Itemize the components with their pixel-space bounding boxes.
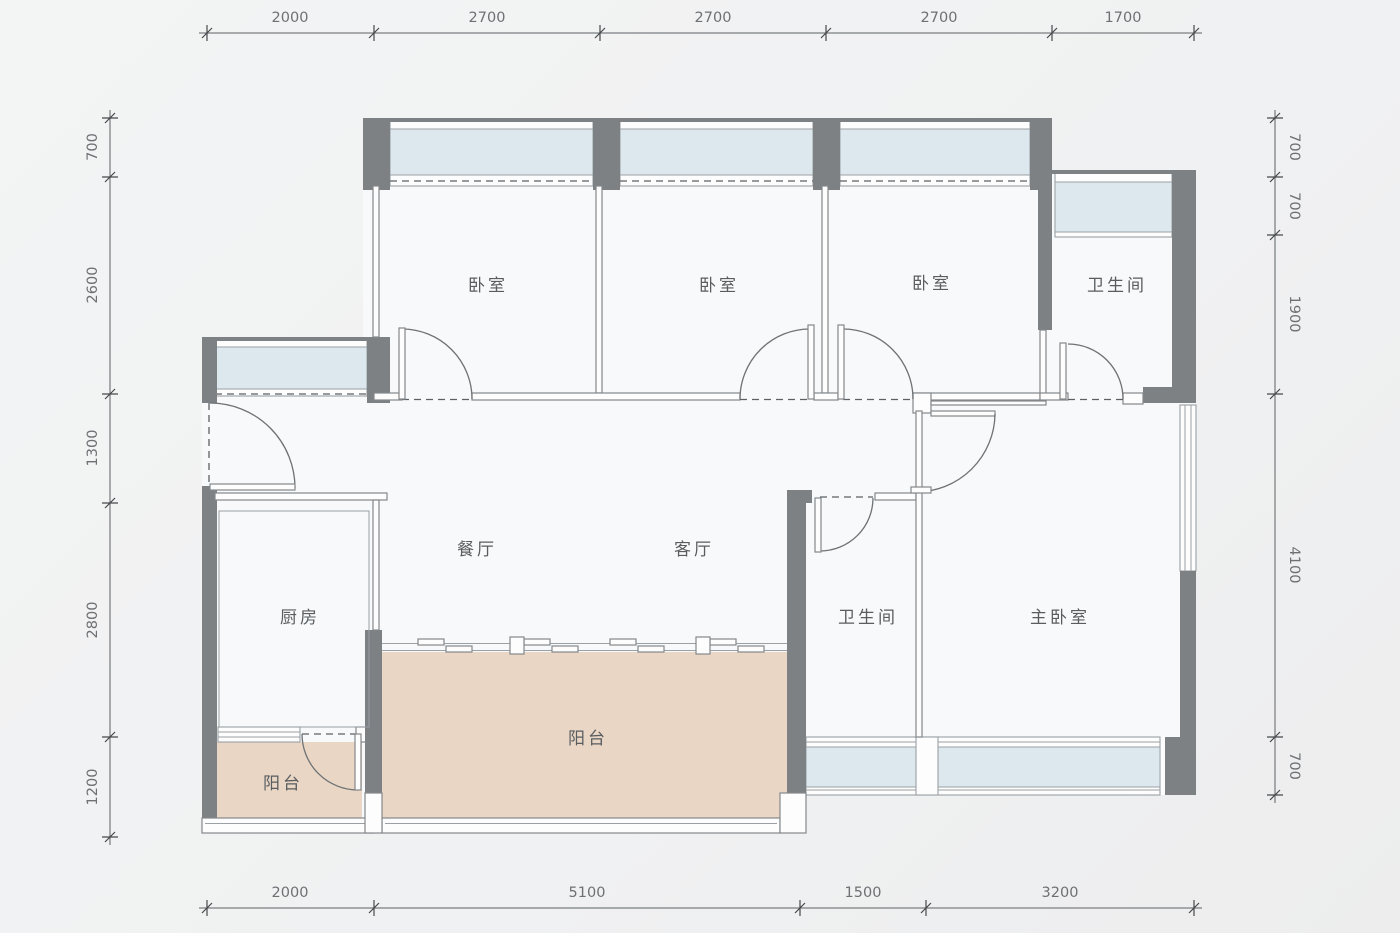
entry-bay-window: [215, 337, 367, 396]
room-label-balcony-small: 阳台: [263, 774, 303, 794]
dim-right-4: 4100: [1286, 547, 1302, 584]
dim-bottom-2: 5100: [569, 885, 606, 901]
dim-left-4: 2800: [85, 602, 101, 639]
dimension-bottom: 2000 5100 1500 3200: [199, 885, 1202, 916]
master-side-window: [1180, 405, 1196, 571]
dim-left-5: 1200: [85, 769, 101, 806]
south-window-band: [806, 737, 1160, 795]
dim-left-3: 1300: [85, 430, 101, 467]
bedroom3-bay-window: [840, 118, 1030, 186]
room-label-dining: 餐厅: [457, 540, 497, 560]
dim-bottom-4: 3200: [1042, 885, 1079, 901]
dim-top-5: 1700: [1105, 10, 1142, 26]
dimension-right: 700 700 1900 4100 700: [1267, 110, 1302, 803]
room-label-master-bedroom: 主卧室: [1030, 608, 1090, 628]
room-label-bedroom3: 卧室: [912, 274, 952, 294]
dim-top-1: 2000: [272, 10, 309, 26]
floor-plan-canvas: 卧室 卧室 卧室 卫生间 餐厅 客厅 厨房 卫生间 主卧室 阳台 阳台 2000…: [0, 0, 1400, 933]
dimension-top: 2000 2700 2700 2700 1700: [199, 10, 1202, 41]
dimension-left: 700 2600 1300 2800 1200: [85, 110, 118, 845]
dim-bottom-1: 2000: [272, 885, 309, 901]
room-label-living: 客厅: [674, 540, 714, 560]
dim-right-5: 700: [1286, 752, 1302, 780]
room-label-bath-master: 卫生间: [838, 608, 898, 628]
floor-plan-page: 卧室 卧室 卧室 卫生间 餐厅 客厅 厨房 卫生间 主卧室 阳台 阳台 2000…: [0, 0, 1400, 933]
room-label-kitchen: 厨房: [280, 608, 320, 628]
dim-left-2: 2600: [85, 267, 101, 304]
bedroom1-bay-window: [390, 118, 593, 186]
room-label-bedroom1: 卧室: [468, 276, 508, 296]
dim-right-2: 700: [1286, 192, 1302, 220]
bedroom2-bay-window: [620, 118, 813, 186]
room-label-balcony-large: 阳台: [568, 729, 608, 749]
dim-top-3: 2700: [695, 10, 732, 26]
dim-left-1: 700: [85, 133, 101, 161]
room-label-bedroom2: 卧室: [699, 276, 739, 296]
room-label-bath-top: 卫生间: [1087, 276, 1147, 296]
dim-bottom-3: 1500: [845, 885, 882, 901]
dim-top-2: 2700: [469, 10, 506, 26]
dim-right-3: 1900: [1286, 296, 1302, 333]
dim-right-1: 700: [1286, 133, 1302, 161]
dim-top-4: 2700: [921, 10, 958, 26]
